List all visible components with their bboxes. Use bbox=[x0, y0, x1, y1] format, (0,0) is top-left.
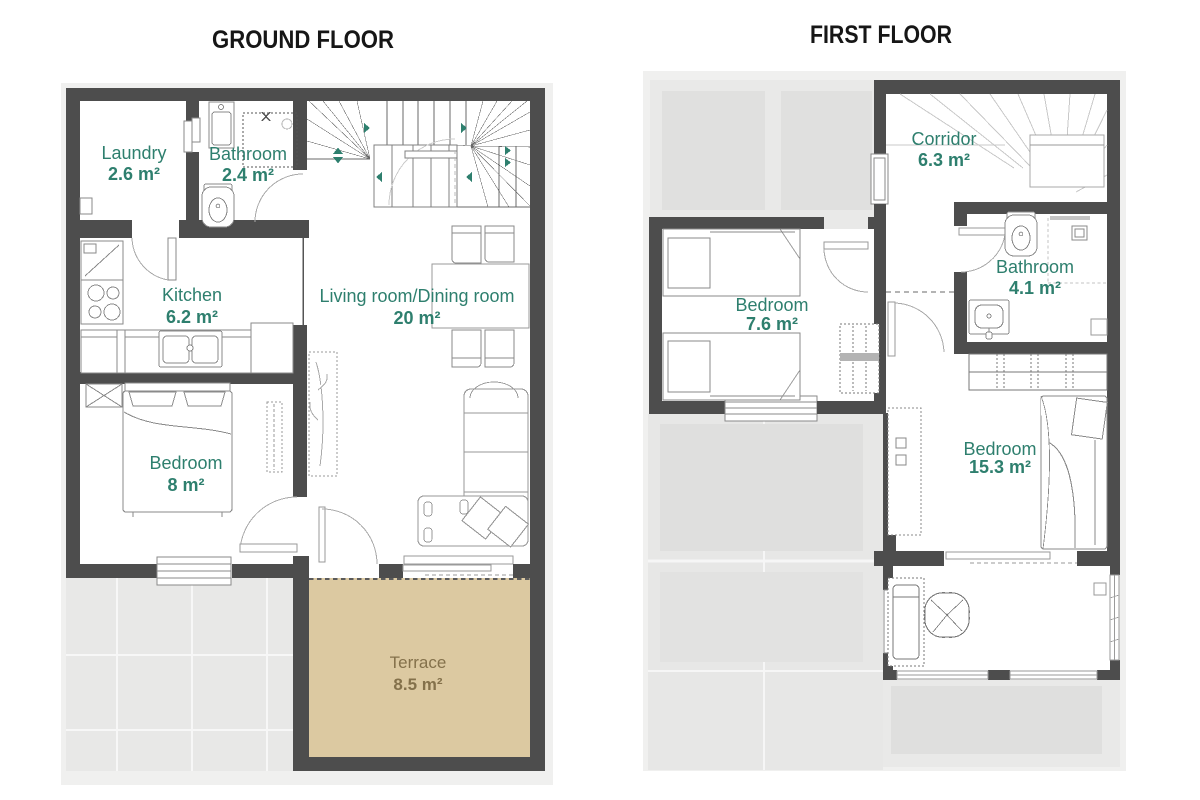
svg-text:6.2 m²: 6.2 m² bbox=[166, 307, 218, 327]
svg-text:Kitchen: Kitchen bbox=[162, 285, 222, 305]
svg-text:FIRST FLOOR: FIRST FLOOR bbox=[810, 21, 952, 49]
svg-text:Terrace: Terrace bbox=[390, 653, 447, 672]
svg-text:Laundry: Laundry bbox=[101, 143, 166, 163]
svg-text:2.6 m²: 2.6 m² bbox=[108, 164, 160, 184]
svg-text:Bathroom: Bathroom bbox=[996, 257, 1074, 277]
svg-text:8.5 m²: 8.5 m² bbox=[393, 675, 442, 694]
svg-text:Bedroom: Bedroom bbox=[735, 295, 808, 315]
svg-text:Bedroom: Bedroom bbox=[963, 439, 1036, 459]
svg-text:6.3 m²: 6.3 m² bbox=[918, 150, 970, 170]
svg-text:8 m²: 8 m² bbox=[167, 475, 204, 495]
svg-text:Living room/Dining room: Living room/Dining room bbox=[319, 286, 514, 306]
svg-text:4.1 m²: 4.1 m² bbox=[1009, 278, 1061, 298]
svg-text:Bathroom: Bathroom bbox=[209, 144, 287, 164]
svg-text:20 m²: 20 m² bbox=[393, 308, 440, 328]
svg-text:2.4 m²: 2.4 m² bbox=[222, 165, 274, 185]
svg-text:GROUND FLOOR: GROUND FLOOR bbox=[212, 26, 394, 54]
svg-text:7.6 m²: 7.6 m² bbox=[746, 314, 798, 334]
svg-text:Corridor: Corridor bbox=[911, 129, 976, 149]
svg-text:15.3 m²: 15.3 m² bbox=[969, 457, 1031, 477]
svg-text:Bedroom: Bedroom bbox=[149, 453, 222, 473]
